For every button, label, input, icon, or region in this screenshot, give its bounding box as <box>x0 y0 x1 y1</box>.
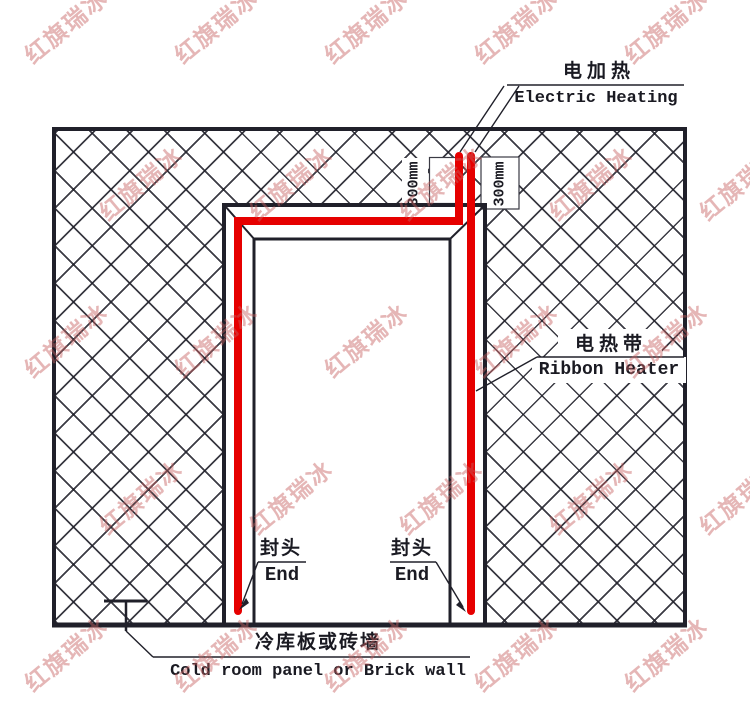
label-end-left-en: End <box>265 566 299 585</box>
diagram-canvas: 电加热 Electric Heating 300mm 300mm 电热带 Rib… <box>0 0 750 720</box>
watermark-text: 红旗瑞冰 <box>616 0 714 70</box>
watermark-text: 红旗瑞冰 <box>691 451 750 541</box>
watermark-text: 红旗瑞冰 <box>466 0 564 70</box>
label-end-left-cn: 封头 <box>260 539 302 558</box>
watermark-text: 红旗瑞冰 <box>691 137 750 227</box>
watermark-text: 红旗瑞冰 <box>166 0 264 70</box>
label-electric-heating-en: Electric Heating <box>514 90 677 107</box>
watermark-text: 红旗瑞冰 <box>316 0 414 70</box>
dim-label-left: 300mm <box>407 161 422 206</box>
label-end-right-cn: 封头 <box>391 539 433 558</box>
label-electric-heating-cn: 电加热 <box>563 62 635 81</box>
label-ribbon-heater-en: Ribbon Heater <box>539 361 679 379</box>
leader-wall-label <box>126 631 153 657</box>
watermark-text: 红旗瑞冰 <box>16 0 114 70</box>
label-end-right-en: End <box>395 566 429 585</box>
label-ribbon-heater-cn: 电热带 <box>575 335 647 354</box>
dim-label-right: 300mm <box>493 161 508 206</box>
label-wall-cn: 冷库板或砖墙 <box>255 633 381 652</box>
label-wall-en: Cold room panel or Brick wall <box>170 663 466 680</box>
door-frame-area <box>222 203 487 627</box>
